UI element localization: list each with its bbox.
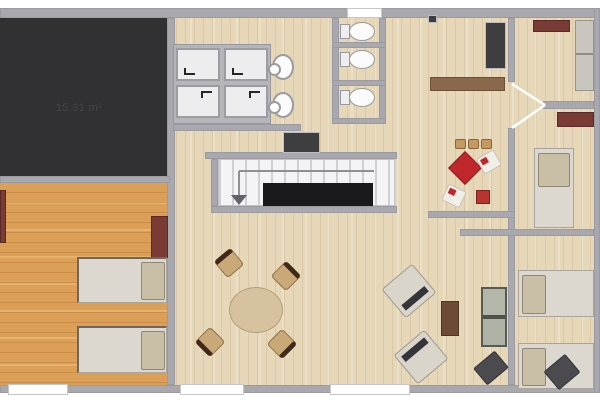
shower-tray[interactable] — [176, 48, 220, 81]
drain-icon — [232, 68, 243, 75]
wall-right-bedrooms — [460, 229, 594, 236]
cushion-icon — [448, 188, 457, 196]
wall-stair-top — [205, 152, 397, 159]
shower-tray[interactable] — [176, 85, 220, 118]
wall-wc-right — [379, 18, 386, 124]
bed[interactable] — [77, 326, 167, 373]
wall-darkroom-bottom — [0, 176, 170, 183]
room-area-label: 15.31 m² — [18, 102, 140, 114]
shelf-line — [576, 53, 593, 55]
sideboard[interactable] — [430, 77, 505, 91]
window[interactable] — [347, 8, 382, 18]
kids-stool[interactable] — [481, 139, 492, 149]
wall-wc-partition — [332, 118, 386, 124]
shower-tray[interactable] — [224, 48, 268, 81]
dining-table[interactable] — [229, 287, 283, 333]
dresser[interactable] — [533, 20, 570, 32]
bed[interactable] — [518, 270, 594, 317]
toilet-bowl — [349, 22, 375, 41]
wall-topright-room — [543, 101, 594, 109]
pillow — [141, 262, 165, 300]
sink[interactable] — [272, 92, 294, 118]
wardrobe[interactable] — [0, 190, 6, 243]
wall-wc-partition — [332, 42, 386, 48]
dresser[interactable] — [557, 112, 594, 127]
cushion-icon — [480, 157, 489, 166]
drain-icon — [201, 91, 212, 98]
kids-stool[interactable] — [468, 139, 479, 149]
wall-wc-partition — [332, 80, 386, 86]
wall-bathroom-bottom — [173, 124, 301, 131]
wall-top — [0, 8, 600, 18]
kids-stool[interactable] — [455, 139, 466, 149]
bed[interactable] — [77, 257, 167, 303]
wall-bottom — [0, 385, 600, 393]
sink[interactable] — [272, 54, 294, 80]
drain-icon — [249, 91, 260, 98]
coffee-table[interactable] — [441, 301, 459, 336]
toilet[interactable] — [340, 22, 376, 41]
door-swing[interactable] — [505, 78, 550, 133]
wall-right-vertical-upper — [508, 18, 515, 82]
wardrobe[interactable] — [151, 216, 168, 258]
kids-side-table[interactable] — [476, 190, 490, 204]
wall-fixture — [428, 15, 437, 23]
shower-tray[interactable] — [224, 85, 268, 118]
stair-down-arrow-icon — [231, 195, 247, 205]
pillow — [522, 348, 546, 386]
shower-block — [173, 44, 271, 124]
cabinet[interactable] — [575, 20, 594, 91]
wall-right — [594, 8, 600, 393]
toilet-bowl — [349, 88, 375, 107]
floor-plan-canvas[interactable]: 15.31 m² — [0, 0, 600, 400]
stair-void — [263, 183, 373, 206]
window[interactable] — [180, 384, 244, 395]
dark-room-floor[interactable]: 15.31 m² — [0, 18, 170, 176]
wall-stair-bottom — [211, 206, 397, 213]
sofa[interactable] — [481, 287, 507, 347]
wall-right-vertical-lower — [508, 128, 515, 385]
dark-bench[interactable] — [485, 22, 506, 69]
pillow — [141, 331, 165, 370]
wall-stair-left — [211, 159, 218, 206]
window[interactable] — [8, 384, 68, 395]
stair-handrail — [239, 170, 374, 172]
drain-icon — [184, 68, 195, 75]
toilet[interactable] — [340, 50, 376, 69]
toilet-bowl — [349, 50, 375, 69]
bed[interactable] — [534, 148, 574, 228]
window[interactable] — [330, 384, 410, 395]
wall-wc-left — [332, 18, 339, 124]
pillow — [538, 153, 570, 187]
pillow — [522, 275, 546, 314]
toilet[interactable] — [340, 88, 376, 107]
stair-arrow-line — [238, 171, 240, 196]
tv-cabinet[interactable] — [283, 132, 320, 153]
wall-kids-corner — [428, 211, 515, 218]
